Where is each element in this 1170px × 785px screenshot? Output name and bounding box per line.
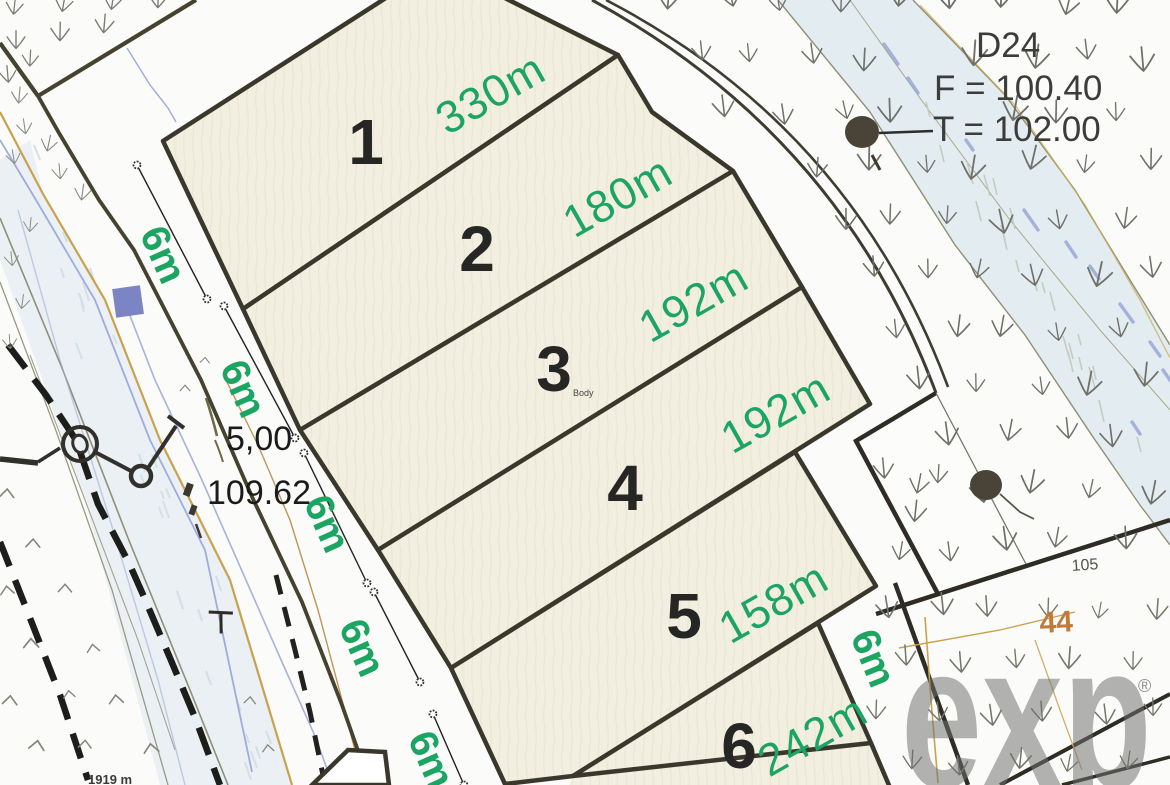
svg-text:Body: Body	[573, 388, 594, 398]
svg-text:5,00: 5,00	[226, 420, 292, 458]
svg-text:5: 5	[666, 580, 702, 652]
svg-text:1: 1	[348, 106, 384, 178]
svg-text:3: 3	[536, 333, 572, 405]
svg-text:F = 100.40: F = 100.40	[934, 69, 1102, 108]
svg-text:2: 2	[459, 213, 495, 285]
svg-text:4: 4	[607, 452, 643, 524]
svg-text:T = 102.00: T = 102.00	[933, 110, 1101, 149]
svg-text:®: ®	[1138, 676, 1151, 696]
svg-text:D24: D24	[976, 26, 1040, 65]
svg-text:1919 m: 1919 m	[88, 772, 132, 785]
svg-text:105: 105	[1071, 556, 1099, 575]
svg-text:109.62: 109.62	[207, 474, 311, 512]
svg-text:exp: exp	[901, 601, 1152, 785]
